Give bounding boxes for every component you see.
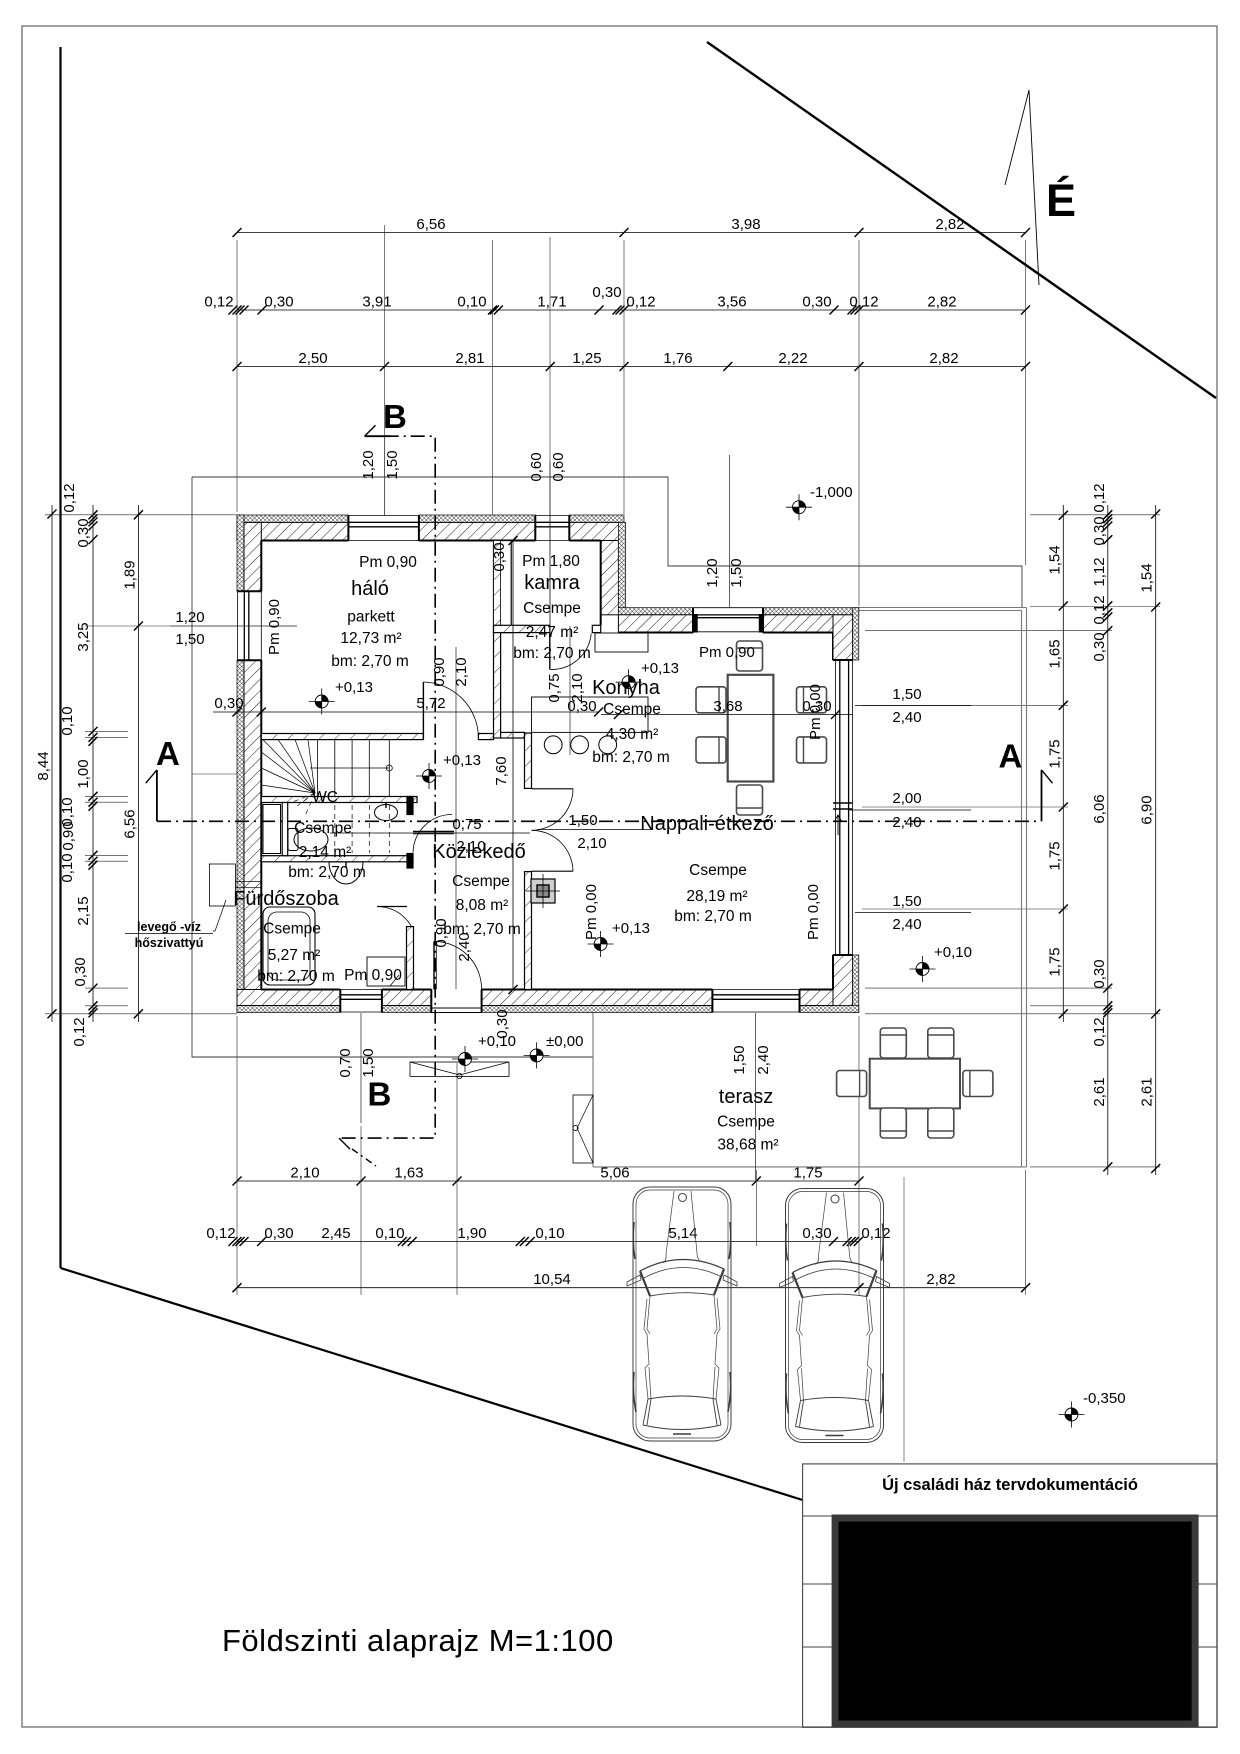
- svg-text:0,30: 0,30: [592, 284, 621, 301]
- svg-text:3,98: 3,98: [731, 216, 760, 233]
- svg-text:2,15: 2,15: [75, 896, 92, 925]
- svg-text:0,30: 0,30: [72, 957, 89, 986]
- svg-text:bm: 2,70 m: bm: 2,70 m: [592, 749, 670, 766]
- svg-text:0,10: 0,10: [457, 294, 486, 311]
- svg-text:0,10: 0,10: [59, 706, 76, 735]
- svg-text:0,70: 0,70: [337, 1048, 354, 1077]
- svg-text:1,50: 1,50: [384, 450, 401, 479]
- svg-text:0,90: 0,90: [433, 918, 450, 947]
- svg-text:1,20: 1,20: [704, 558, 721, 587]
- svg-text:Konyha: Konyha: [592, 677, 661, 699]
- svg-text:1,71: 1,71: [537, 294, 566, 311]
- svg-text:-0,350: -0,350: [1083, 1390, 1126, 1407]
- svg-text:6,90: 6,90: [1139, 795, 1156, 824]
- svg-text:0,60: 0,60: [528, 452, 545, 481]
- svg-text:0,12: 0,12: [204, 294, 233, 311]
- svg-text:2,61: 2,61: [1139, 1077, 1156, 1106]
- svg-text:6,06: 6,06: [1091, 794, 1108, 823]
- svg-text:2,10: 2,10: [453, 657, 470, 686]
- svg-text:1,54: 1,54: [1139, 563, 1156, 592]
- svg-text:bm: 2,70 m: bm: 2,70 m: [513, 645, 591, 662]
- svg-text:Földszinti alaprajz M=1:100: Földszinti alaprajz M=1:100: [222, 1623, 614, 1658]
- svg-text:0,10: 0,10: [375, 1225, 404, 1242]
- svg-text:2,10: 2,10: [577, 835, 606, 852]
- svg-text:Új családi ház tervdokumentác: Új családi ház tervdokumentáció: [882, 1475, 1138, 1494]
- svg-text:2,40: 2,40: [755, 1045, 772, 1074]
- svg-text:1,25: 1,25: [572, 350, 601, 367]
- svg-text:0,30: 0,30: [264, 294, 293, 311]
- svg-text:2,82: 2,82: [926, 1271, 955, 1288]
- svg-text:7,60: 7,60: [493, 756, 510, 785]
- svg-text:0,10: 0,10: [535, 1225, 564, 1242]
- svg-text:Pm 1,80: Pm 1,80: [522, 553, 580, 570]
- svg-text:levegő -víz: levegő -víz: [137, 920, 201, 934]
- svg-text:háló: háló: [351, 578, 389, 600]
- svg-text:WC: WC: [312, 789, 338, 806]
- svg-text:2,61: 2,61: [1091, 1077, 1108, 1106]
- svg-text:3,91: 3,91: [362, 294, 391, 311]
- svg-text:0,30: 0,30: [802, 1225, 831, 1242]
- svg-text:6,56: 6,56: [416, 216, 445, 233]
- svg-text:1,20: 1,20: [175, 609, 204, 626]
- svg-text:Csempe: Csempe: [263, 921, 321, 938]
- svg-text:+0,13: +0,13: [443, 752, 481, 769]
- svg-text:+0,13: +0,13: [612, 920, 650, 937]
- svg-text:3,25: 3,25: [75, 622, 92, 651]
- svg-text:+0,13: +0,13: [641, 660, 679, 677]
- svg-text:1,00: 1,00: [75, 759, 92, 788]
- svg-text:0,75: 0,75: [452, 816, 481, 833]
- svg-text:parkett: parkett: [347, 609, 395, 626]
- svg-text:hőszivattyú: hőszivattyú: [135, 936, 204, 950]
- svg-text:0,12: 0,12: [206, 1225, 235, 1242]
- svg-text:bm: 2,70 m: bm: 2,70 m: [674, 908, 752, 925]
- svg-text:0,12: 0,12: [626, 294, 655, 311]
- svg-text:1,65: 1,65: [1046, 639, 1063, 668]
- svg-text:2,40: 2,40: [456, 932, 473, 961]
- svg-text:28,19 m²: 28,19 m²: [686, 888, 747, 905]
- svg-text:2,00: 2,00: [892, 790, 921, 807]
- svg-text:0,12: 0,12: [1091, 595, 1108, 624]
- svg-text:1,89: 1,89: [121, 560, 138, 589]
- svg-text:0,12: 0,12: [861, 1225, 890, 1242]
- svg-text:0,12: 0,12: [71, 1017, 88, 1046]
- svg-text:12,73 m²: 12,73 m²: [340, 630, 401, 647]
- svg-text:Csempe: Csempe: [523, 600, 581, 617]
- svg-text:2,40: 2,40: [892, 709, 921, 726]
- svg-text:0,90: 0,90: [431, 657, 448, 686]
- svg-text:8,08 m²: 8,08 m²: [456, 897, 509, 914]
- svg-text:Csempe: Csempe: [603, 701, 661, 718]
- svg-text:5,27 m²: 5,27 m²: [268, 947, 321, 964]
- svg-text:0,12: 0,12: [61, 483, 78, 512]
- svg-text:0,30: 0,30: [1091, 959, 1108, 988]
- svg-text:5,14: 5,14: [668, 1225, 697, 1242]
- svg-text:Fürdőszoba: Fürdőszoba: [233, 888, 339, 910]
- svg-text:2,10: 2,10: [290, 1165, 319, 1182]
- svg-text:5,72: 5,72: [416, 695, 445, 712]
- svg-text:Pm 0,90: Pm 0,90: [699, 644, 755, 661]
- svg-text:6,56: 6,56: [121, 809, 138, 838]
- svg-text:0,30: 0,30: [1091, 632, 1108, 661]
- svg-text:Csempe: Csempe: [689, 862, 747, 879]
- svg-text:0,30: 0,30: [264, 1225, 293, 1242]
- svg-text:bm: 2,70 m: bm: 2,70 m: [443, 921, 521, 938]
- svg-text:2,47 m²: 2,47 m²: [526, 624, 579, 641]
- svg-text:0,30: 0,30: [214, 695, 243, 712]
- svg-text:2,10: 2,10: [456, 838, 485, 855]
- svg-text:terasz: terasz: [719, 1086, 773, 1108]
- svg-text:+0,10: +0,10: [934, 944, 972, 961]
- svg-text:0,30: 0,30: [494, 1009, 511, 1038]
- svg-text:2,40: 2,40: [892, 916, 921, 933]
- svg-text:B: B: [383, 398, 407, 435]
- svg-text:8,44: 8,44: [35, 751, 52, 780]
- svg-text:0,12: 0,12: [849, 294, 878, 311]
- svg-text:3,56: 3,56: [717, 294, 746, 311]
- svg-text:1,50: 1,50: [892, 686, 921, 703]
- svg-text:1,50: 1,50: [728, 558, 745, 587]
- svg-text:1,50: 1,50: [568, 812, 597, 829]
- svg-text:0,10: 0,10: [59, 853, 76, 882]
- svg-text:Pm 0,00: Pm 0,00: [807, 684, 824, 740]
- svg-text:-1,000: -1,000: [810, 484, 853, 501]
- svg-text:2,22: 2,22: [778, 350, 807, 367]
- svg-text:A: A: [156, 735, 180, 772]
- svg-text:2,82: 2,82: [935, 216, 964, 233]
- svg-text:Pm 0,00: Pm 0,00: [805, 884, 822, 940]
- svg-text:1,54: 1,54: [1046, 545, 1063, 574]
- svg-text:38,68 m²: 38,68 m²: [717, 1137, 778, 1154]
- svg-text:2,45: 2,45: [321, 1225, 350, 1242]
- svg-text:Csempe: Csempe: [452, 873, 510, 890]
- svg-text:B: B: [368, 1076, 392, 1113]
- svg-text:1,50: 1,50: [892, 893, 921, 910]
- svg-text:10,54: 10,54: [533, 1271, 571, 1288]
- svg-text:±0,00: ±0,00: [546, 1033, 583, 1050]
- svg-text:1,50: 1,50: [175, 631, 204, 648]
- svg-text:2,82: 2,82: [927, 294, 956, 311]
- svg-text:bm: 2,70 m: bm: 2,70 m: [257, 968, 335, 985]
- svg-text:2,82: 2,82: [929, 350, 958, 367]
- svg-text:kamra: kamra: [524, 572, 580, 594]
- svg-text:É: É: [1046, 175, 1076, 226]
- svg-text:2,40: 2,40: [892, 814, 921, 831]
- svg-text:2,10: 2,10: [569, 673, 586, 702]
- svg-text:Csempe: Csempe: [294, 820, 352, 837]
- svg-text:Pm 0,00: Pm 0,00: [583, 884, 600, 940]
- svg-text:0,30: 0,30: [802, 294, 831, 311]
- svg-text:2,81: 2,81: [455, 350, 484, 367]
- svg-text:0,30: 0,30: [1091, 516, 1108, 545]
- svg-text:0,30: 0,30: [75, 518, 92, 547]
- svg-text:Csempe: Csempe: [717, 1114, 775, 1131]
- svg-text:1,50: 1,50: [360, 1048, 377, 1077]
- svg-text:1,63: 1,63: [394, 1165, 423, 1182]
- svg-text:0,60: 0,60: [550, 452, 567, 481]
- svg-text:1,75: 1,75: [1046, 947, 1063, 976]
- svg-text:1,75: 1,75: [1046, 841, 1063, 870]
- svg-text:1,76: 1,76: [663, 350, 692, 367]
- svg-text:1,12: 1,12: [1091, 557, 1108, 586]
- svg-text:0,12: 0,12: [1091, 483, 1108, 512]
- svg-text:0,90: 0,90: [60, 821, 77, 850]
- svg-text:Pm 0,90: Pm 0,90: [266, 599, 283, 655]
- svg-text:2,50: 2,50: [298, 350, 327, 367]
- svg-text:1,75: 1,75: [1046, 739, 1063, 768]
- svg-text:1,50: 1,50: [731, 1045, 748, 1074]
- svg-text:0,12: 0,12: [1091, 1017, 1108, 1046]
- svg-text:2,14 m²: 2,14 m²: [299, 844, 352, 861]
- svg-text:0,30: 0,30: [491, 542, 508, 571]
- svg-text:4,30 m²: 4,30 m²: [606, 726, 659, 743]
- svg-text:1,90: 1,90: [457, 1225, 486, 1242]
- svg-text:Pm 0,90: Pm 0,90: [359, 554, 417, 571]
- svg-text:+0,13: +0,13: [335, 679, 373, 696]
- svg-text:Pm 0,90: Pm 0,90: [344, 967, 402, 984]
- svg-text:Nappali-étkező: Nappali-étkező: [640, 813, 773, 835]
- svg-text:1,20: 1,20: [360, 450, 377, 479]
- svg-text:bm: 2,70 m: bm: 2,70 m: [288, 864, 366, 881]
- svg-text:bm: 2,70 m: bm: 2,70 m: [331, 653, 409, 670]
- svg-text:A: A: [999, 738, 1023, 775]
- svg-text:0,75: 0,75: [546, 673, 563, 702]
- svg-text:3,68: 3,68: [713, 698, 742, 715]
